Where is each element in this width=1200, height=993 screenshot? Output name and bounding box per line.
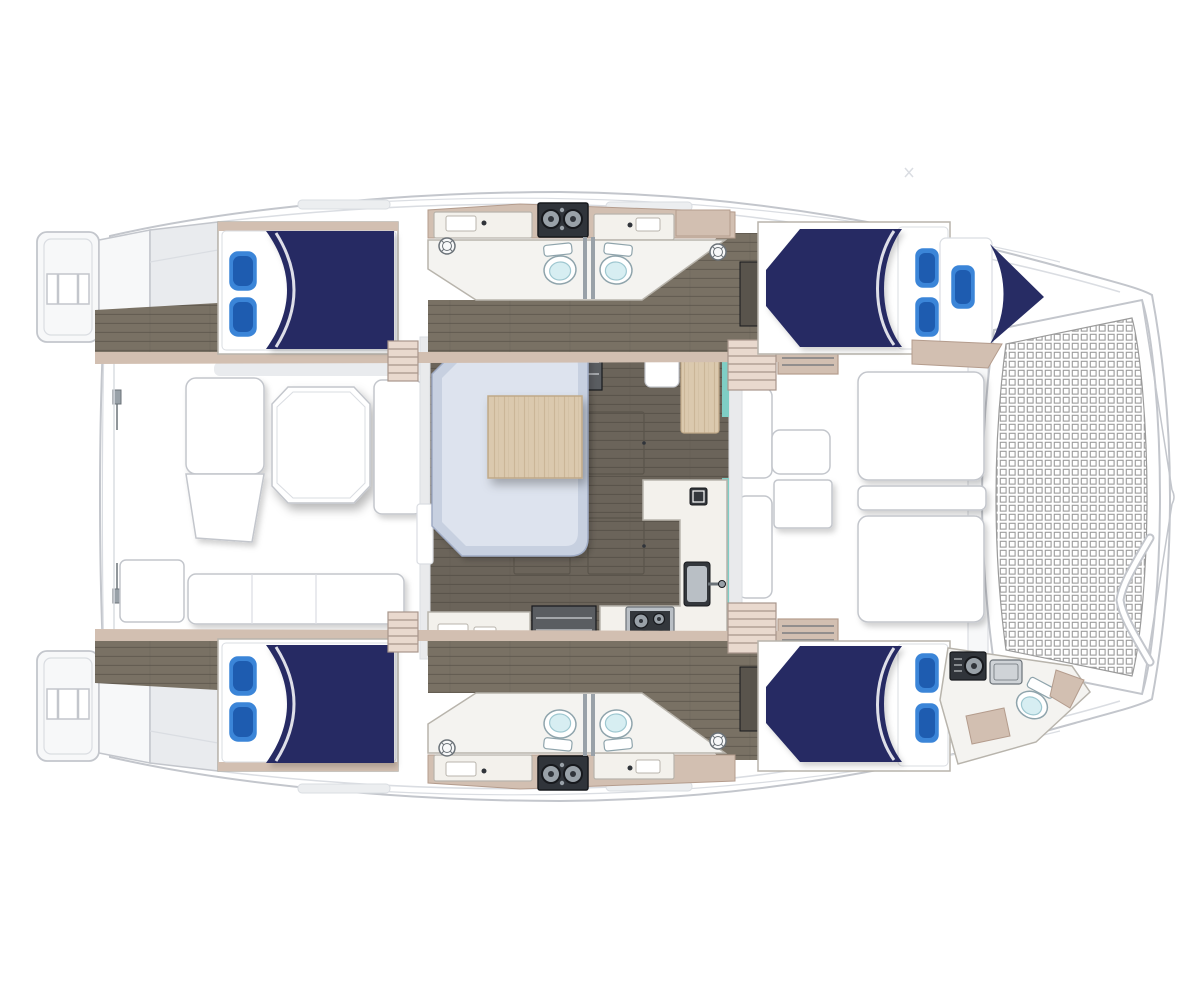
twin-dial-console — [538, 203, 588, 237]
pillow — [914, 702, 940, 744]
twin-dial-console — [538, 756, 588, 790]
galley-prep-sink — [690, 488, 707, 505]
forward-seat-starboard — [738, 496, 772, 598]
salon-aft-door — [417, 504, 433, 564]
vanity-counter — [594, 753, 674, 779]
vanity-counter — [594, 214, 674, 240]
floorplan-image — [0, 0, 1200, 993]
forward-cocktail-table — [774, 480, 832, 528]
swim-platform-port — [37, 232, 99, 342]
cockpit-bench-right — [374, 380, 422, 514]
starboard-forward-cabin — [758, 641, 950, 771]
shower-drain-icon — [710, 733, 726, 749]
toilet-icon — [599, 708, 635, 751]
ladder-icon — [47, 274, 89, 304]
pillow — [228, 250, 258, 292]
salon-table — [488, 396, 582, 478]
cockpit-bench-aft — [188, 574, 404, 624]
port-sidedeck-band — [95, 352, 782, 364]
bed-duvet — [766, 229, 902, 347]
sunpad-starboard — [858, 516, 984, 622]
sunpads — [858, 372, 986, 622]
pillow — [914, 247, 940, 289]
forepeak-step — [912, 340, 1002, 368]
hull-window — [298, 200, 390, 209]
stairs-icon — [388, 612, 418, 652]
port-aft-cabin — [218, 222, 398, 354]
stairs-icon — [388, 341, 418, 381]
starboard-forward-head — [940, 648, 1090, 764]
galley-upper-cabinet — [676, 210, 730, 236]
toilet-icon — [599, 242, 635, 285]
forward-seat-center — [772, 430, 830, 474]
starboard-aft-cabin — [218, 639, 398, 771]
shower-drain-icon — [710, 244, 726, 260]
forward-seat-port — [738, 388, 772, 478]
cockpit-bench-left — [186, 378, 264, 542]
sunpad-center-strip — [858, 486, 986, 510]
shower-drain-icon — [439, 238, 455, 254]
cockpit-table — [272, 387, 370, 503]
shower-drain-icon — [439, 740, 455, 756]
port-forward-cabin — [758, 222, 950, 354]
pillow — [950, 264, 976, 310]
vanity-console — [950, 652, 986, 680]
starboard-sidedeck-band — [95, 629, 782, 641]
helm-seat-module — [120, 560, 184, 622]
ladder-icon — [47, 689, 89, 719]
sunpad-port — [858, 372, 984, 480]
pillow — [228, 701, 258, 743]
salon — [417, 332, 742, 661]
shower-tray — [990, 660, 1022, 684]
pillow — [228, 296, 258, 338]
salon-aft-wall — [420, 337, 430, 659]
pillow — [914, 652, 940, 694]
port-aft-walkway — [95, 303, 218, 357]
catamaran-floorplan-svg — [0, 0, 1200, 993]
hull-window — [298, 784, 390, 793]
pillow — [228, 655, 258, 697]
pillow — [914, 296, 940, 338]
starboard-aft-walkway — [95, 636, 218, 690]
toilet-icon — [541, 242, 577, 285]
swim-platform-starboard — [37, 651, 99, 761]
bed-duvet — [766, 646, 902, 762]
toilet-icon — [541, 708, 577, 751]
